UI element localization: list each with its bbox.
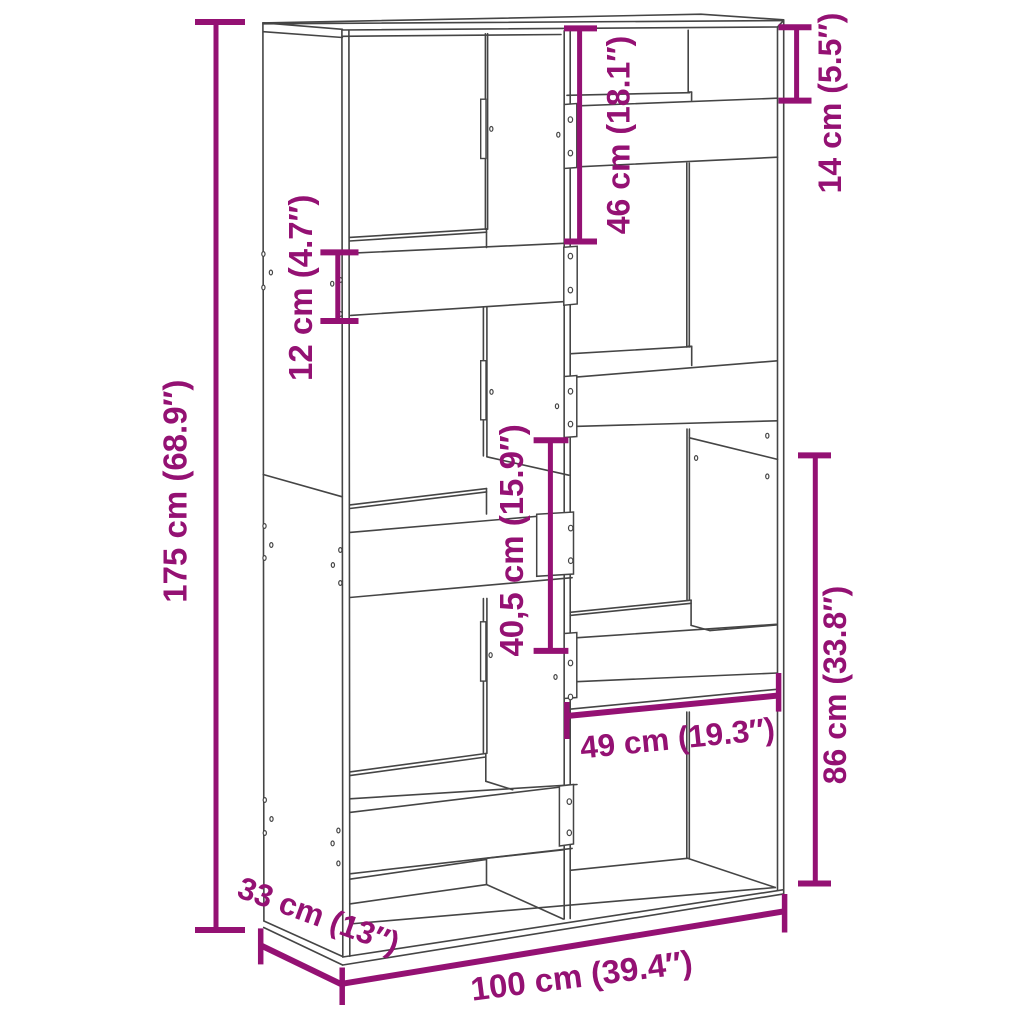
svg-text:86 cm (33.8″): 86 cm (33.8″): [817, 586, 853, 785]
svg-text:40,5 cm (15.9″): 40,5 cm (15.9″): [493, 424, 530, 656]
svg-text:175 cm (68.9″): 175 cm (68.9″): [157, 380, 194, 603]
svg-text:12 cm (4.7″): 12 cm (4.7″): [282, 195, 319, 381]
svg-text:46 cm (18.1″): 46 cm (18.1″): [601, 36, 637, 235]
svg-text:14 cm (5.5″): 14 cm (5.5″): [812, 13, 848, 194]
